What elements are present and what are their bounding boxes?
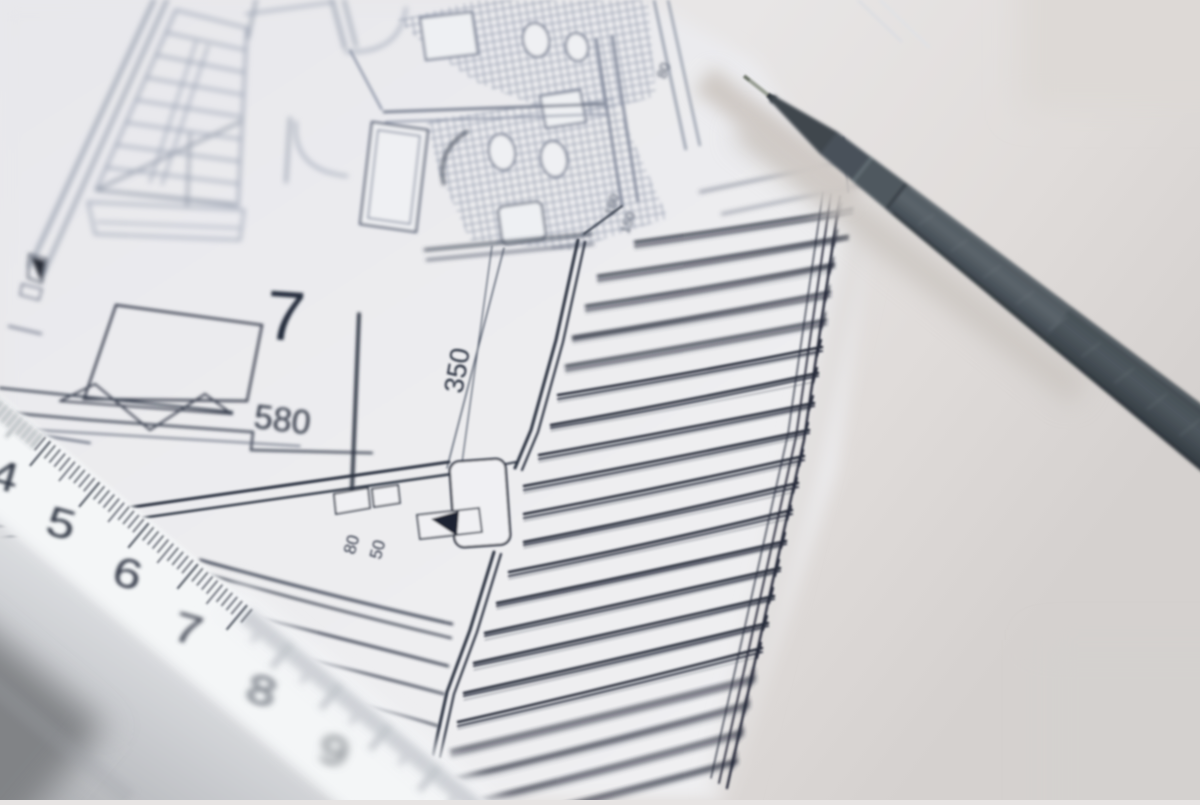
- svg-text:7: 7: [264, 276, 308, 357]
- svg-text:580: 580: [252, 398, 313, 443]
